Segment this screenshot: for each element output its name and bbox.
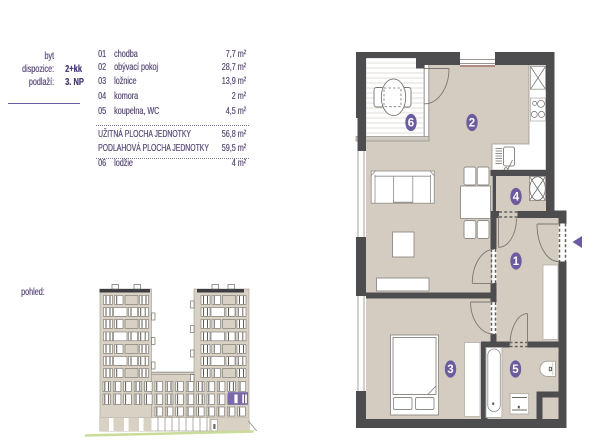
svg-text:1: 1 [513,256,520,268]
svg-text:6: 6 [408,117,414,129]
svg-text:4: 4 [513,191,520,203]
svg-text:2: 2 [469,117,475,129]
svg-text:5: 5 [512,364,519,376]
svg-text:3: 3 [447,364,453,376]
